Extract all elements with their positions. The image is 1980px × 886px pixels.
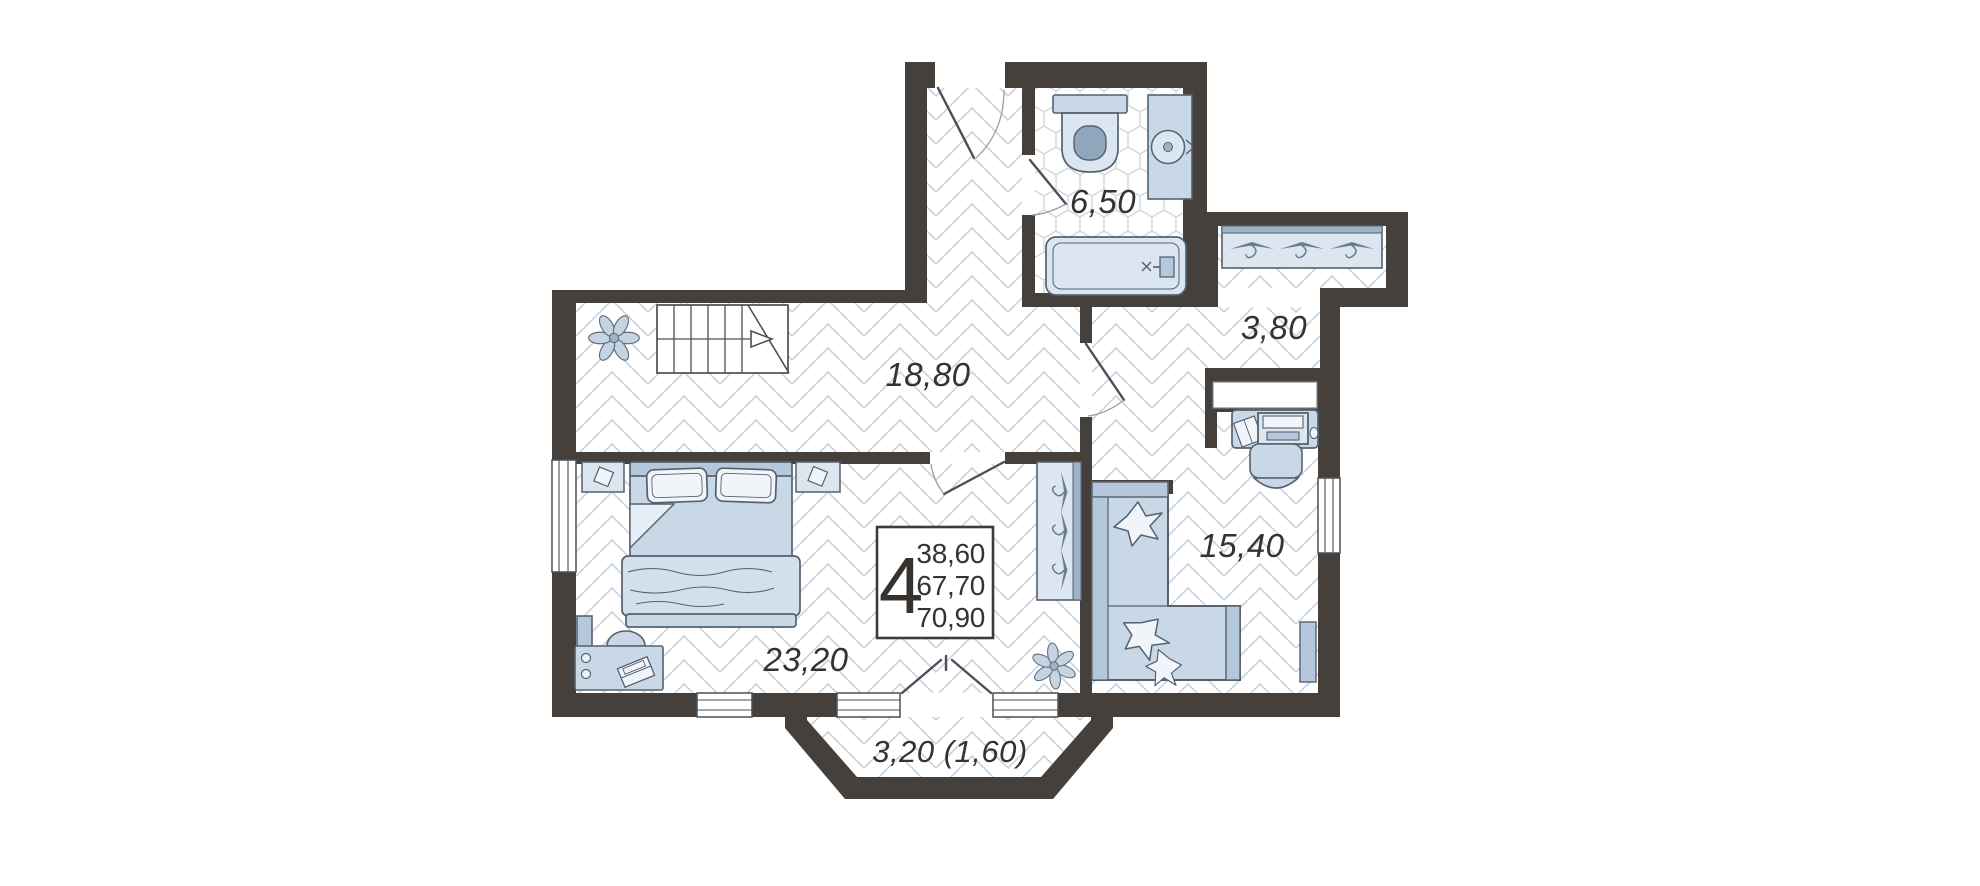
pillow-right bbox=[715, 468, 776, 503]
living-right-window bbox=[1318, 478, 1340, 553]
balcony-area-label: 3,20 (1,60) bbox=[872, 734, 1027, 769]
dressing-area-label: 3,80 bbox=[1241, 309, 1307, 346]
blanket bbox=[622, 556, 800, 616]
area-apartment: 67,70 bbox=[916, 570, 985, 601]
nightstand-left bbox=[582, 462, 624, 492]
toilet bbox=[1053, 95, 1127, 172]
mouse bbox=[1310, 428, 1318, 439]
bathroom-sink bbox=[1148, 95, 1192, 199]
bedroom-left-window bbox=[552, 460, 576, 572]
bed bbox=[622, 462, 800, 627]
bedroom-area-label: 23,20 bbox=[762, 641, 848, 678]
dressing-hanger-rail bbox=[1222, 226, 1382, 268]
area-living: 38,60 bbox=[916, 538, 985, 569]
hall-area-label: 18,80 bbox=[885, 356, 970, 393]
pillow-left bbox=[646, 468, 707, 503]
floor-plan-svg: 18,80 6,50 3,80 23,20 15,40 3,20 (1,60) … bbox=[0, 0, 1980, 886]
bedroom-bottom-window-1 bbox=[697, 693, 752, 717]
living-area-label: 15,40 bbox=[1199, 527, 1284, 564]
hall-floor bbox=[576, 303, 1080, 452]
stairs bbox=[657, 305, 789, 373]
bed-footboard bbox=[626, 614, 796, 627]
living-chair bbox=[1250, 444, 1302, 488]
bathtub bbox=[1046, 237, 1186, 295]
hall-upper-floor bbox=[927, 88, 1022, 303]
bedroom-wardrobe bbox=[1037, 462, 1081, 600]
bedroom-bottom-window-3 bbox=[993, 693, 1058, 717]
apartment-info-box: 4 38,60 67,70 70,90 bbox=[877, 527, 993, 638]
radiator bbox=[1300, 622, 1316, 682]
wall-niche bbox=[1213, 382, 1317, 408]
laptop bbox=[1258, 413, 1308, 444]
tub-faucet bbox=[1160, 257, 1174, 277]
nightstand-right bbox=[796, 462, 840, 492]
area-total: 70,90 bbox=[916, 602, 985, 633]
bedroom-bottom-window-2 bbox=[837, 693, 900, 717]
bathroom-area-label: 6,50 bbox=[1070, 183, 1136, 220]
floor-plan-page: 18,80 6,50 3,80 23,20 15,40 3,20 (1,60) … bbox=[0, 0, 1980, 886]
